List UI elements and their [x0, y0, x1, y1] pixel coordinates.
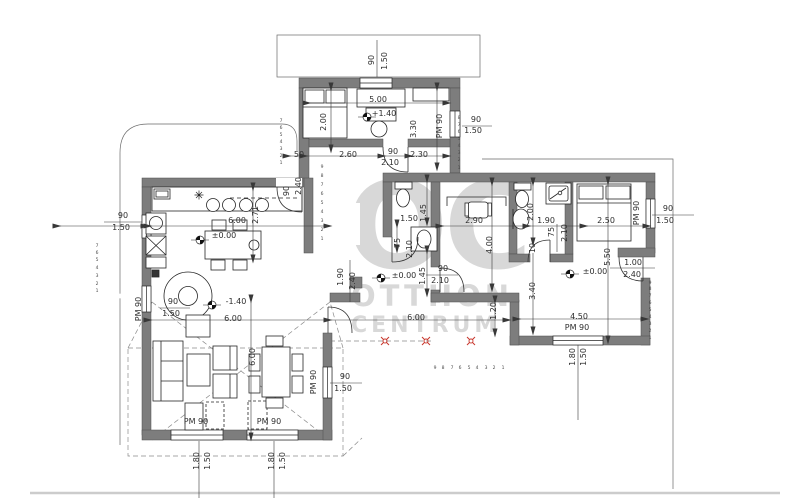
- wardrobe-1: [357, 89, 405, 107]
- armchair-1: [213, 346, 237, 370]
- office-chair: [465, 202, 492, 218]
- bed-bedroom2: [577, 184, 631, 241]
- door-bedroom2: [619, 257, 643, 281]
- wardrobe-2: [413, 88, 449, 101]
- window-top-bedroom: [360, 78, 392, 88]
- left-exterior-stair: [93, 243, 148, 299]
- window-top-bedroom-east: [450, 111, 460, 137]
- north-left-hatch-stair: [277, 72, 301, 110]
- wc-basin: [411, 227, 437, 251]
- window-living-south-1: [171, 430, 223, 440]
- tv-bench: [185, 403, 203, 430]
- window-bedroom2-east: [646, 199, 655, 228]
- south-exterior-stair: [385, 342, 510, 378]
- shower: [546, 183, 571, 204]
- kitchen-appliance-column: [146, 213, 166, 277]
- kitchen-island: [205, 220, 261, 270]
- round-table-center: [179, 287, 198, 306]
- hob-symbol: [195, 191, 204, 200]
- window-west-lower: [142, 286, 151, 312]
- desk-top-bedroom: [366, 108, 396, 137]
- floor-plan-drawing: OC OTTHON CENTRUM: [0, 0, 794, 500]
- window-living-east: [323, 367, 332, 398]
- bed-top-bedroom: [303, 88, 347, 138]
- door-bathroom: [528, 240, 550, 262]
- spiral-staircase: [250, 274, 296, 320]
- planned-furniture-1: [206, 402, 224, 429]
- watermark-centrum: CENTRUM: [351, 313, 500, 338]
- kitchen-counter: [152, 187, 302, 212]
- floor-plan-page: OC OTTHON CENTRUM: [0, 0, 794, 500]
- coffee-table: [187, 354, 210, 386]
- sofa: [153, 341, 183, 401]
- dining-table: [249, 336, 303, 408]
- terrace-outline: [277, 35, 480, 77]
- door-gap-kitchen: [276, 178, 302, 187]
- door-kitchen: [277, 187, 302, 212]
- window-southeast: [553, 336, 603, 345]
- bath-toilet: [514, 183, 531, 208]
- armchair-top: [186, 315, 210, 337]
- armchair-2: [213, 374, 237, 398]
- window-living-south-2: [247, 430, 298, 440]
